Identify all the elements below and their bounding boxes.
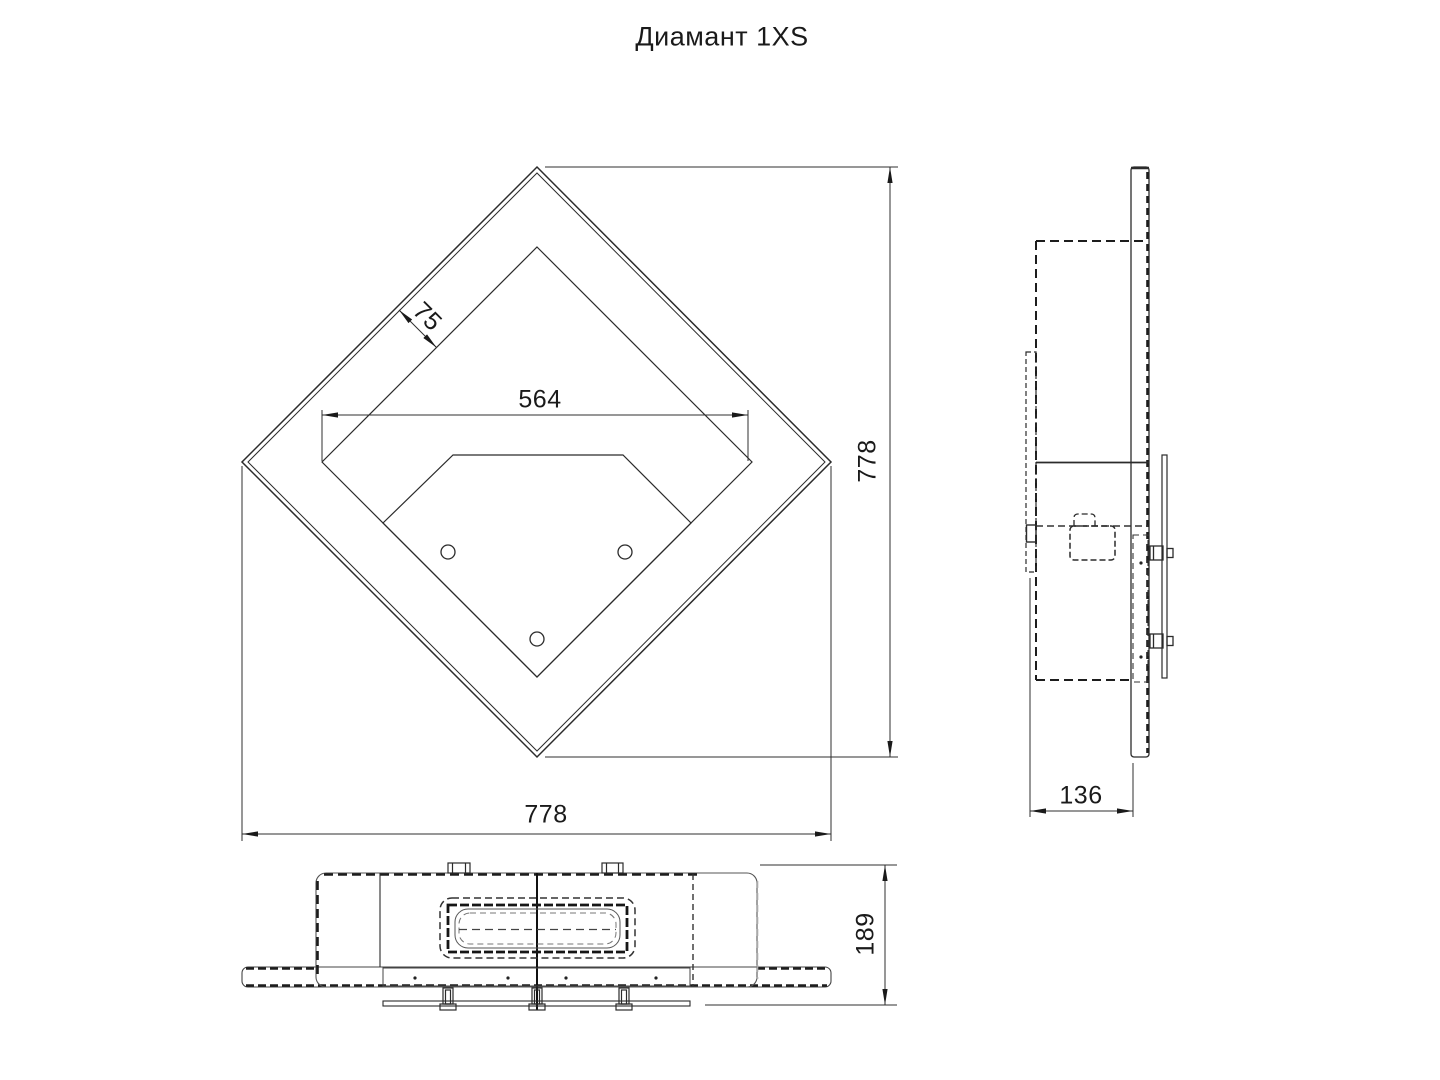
front-view <box>242 167 831 757</box>
drawing-title: Диамант 1XS <box>635 22 808 53</box>
dimension-label-side-depth: 136 <box>1059 782 1102 811</box>
mount-screw-mark-lower <box>1139 655 1142 658</box>
bracket-bolt-right <box>616 988 632 1010</box>
bottom-view <box>242 863 831 1010</box>
screw-mark-3 <box>564 976 567 979</box>
front-strip-hidden <box>1026 352 1036 572</box>
mount-screw-mark-upper <box>1139 561 1142 564</box>
drawing-sheet: Диамант 1XS 75 564 778 778 136 189 <box>0 0 1440 1080</box>
top-tab-left <box>448 863 470 873</box>
outer-diamond <box>242 167 831 757</box>
bracket-bolt-left <box>440 988 456 1010</box>
inner-diamond <box>322 247 752 677</box>
burner-box-hidden <box>1070 526 1115 560</box>
top-tab-right <box>602 863 623 873</box>
side-view <box>1026 167 1173 757</box>
drawing-canvas <box>0 0 1440 1080</box>
dimension-label-diamond-height: 778 <box>854 439 883 482</box>
dimension-label-bottom-depth: 189 <box>852 912 881 955</box>
screw-mark-1 <box>413 976 416 979</box>
plate-hole-bottom <box>530 632 544 646</box>
front-strip-latch <box>1027 525 1037 542</box>
burner-lid-tab-hidden <box>1074 514 1095 526</box>
plate-hole-left <box>441 545 455 559</box>
outer-diamond-inner-line <box>248 173 825 751</box>
plate-hole-right <box>618 545 632 559</box>
screw-mark-2 <box>506 976 509 979</box>
front-view-dimensions <box>242 167 898 841</box>
dimension-label-diamond-width: 778 <box>524 801 567 830</box>
mount-plate-hidden <box>1133 535 1148 682</box>
dimension-label-opening-width: 564 <box>518 386 561 415</box>
screw-mark-4 <box>654 976 657 979</box>
